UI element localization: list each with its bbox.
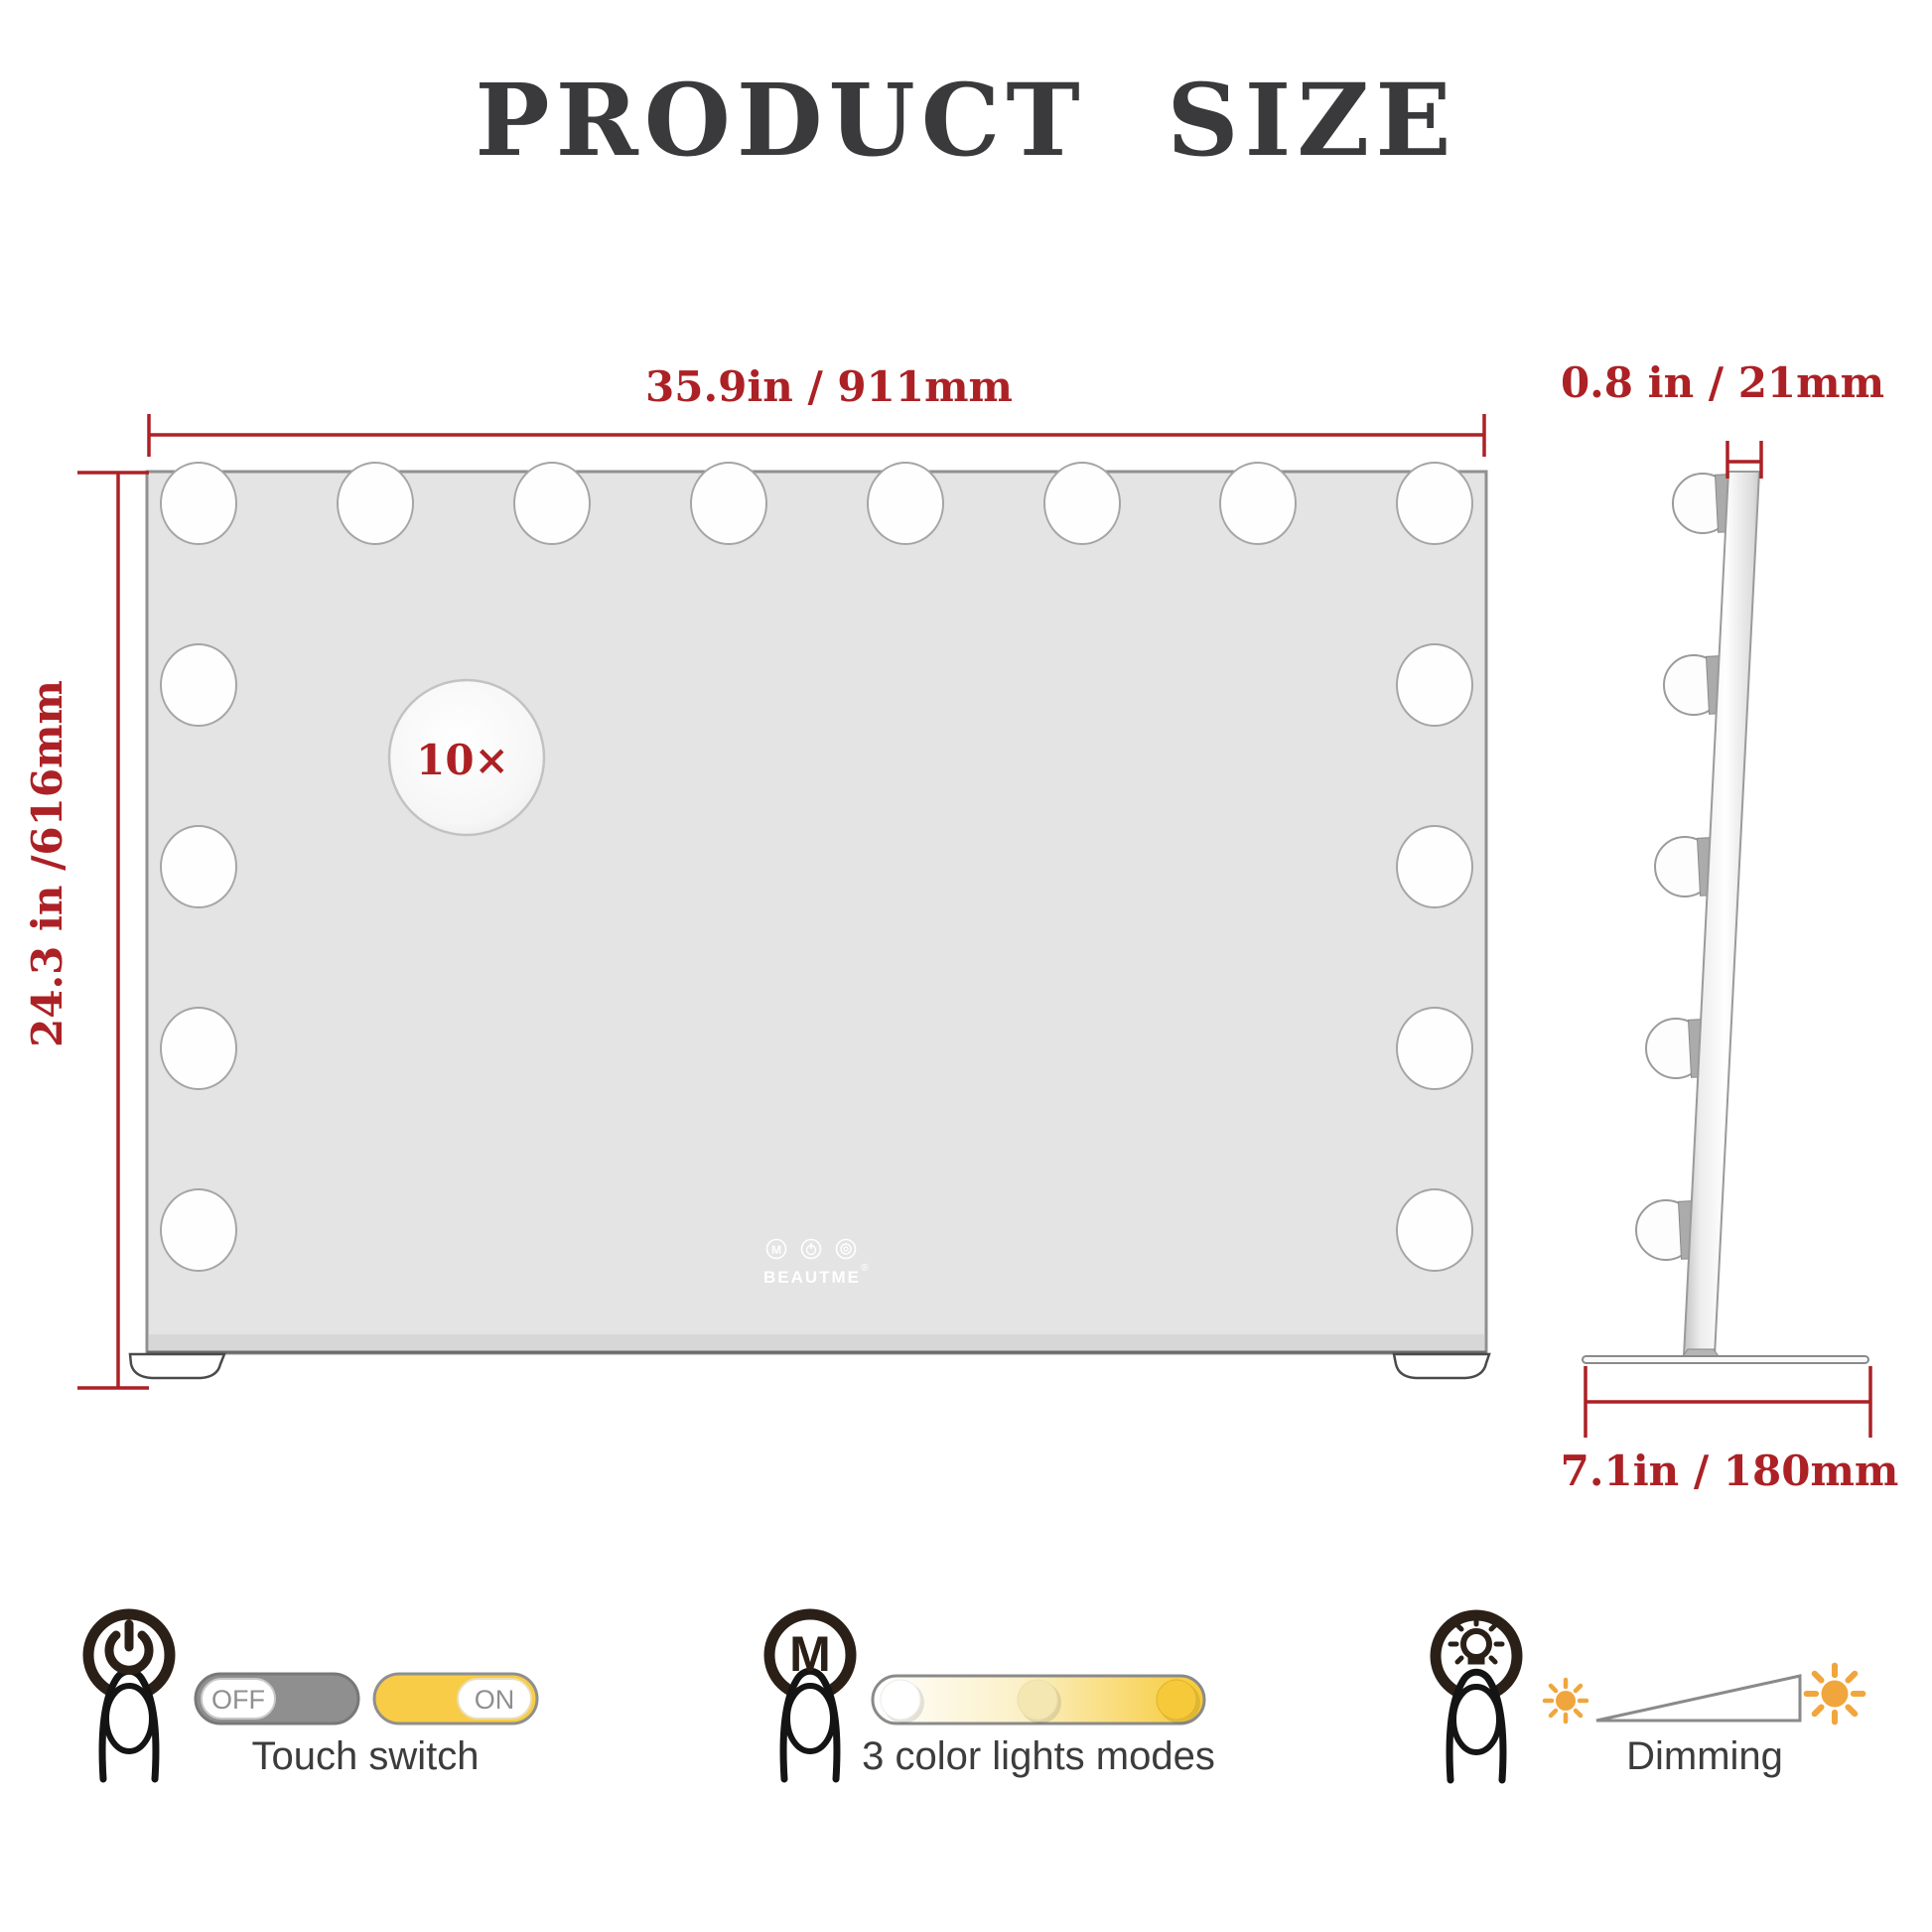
power-icon bbox=[109, 1624, 149, 1670]
magnifier-label: 10× bbox=[416, 736, 509, 784]
width-dimension-label: 35.9in / 911mm bbox=[645, 362, 1013, 411]
thickness-dimension-label: 0.8 in / 21mm bbox=[1561, 358, 1884, 407]
feature-dimming: Dimming bbox=[1436, 1615, 1863, 1780]
magnifier-spot: 10× bbox=[389, 680, 544, 835]
toggle-off-label: OFF bbox=[211, 1685, 265, 1715]
bulb bbox=[1397, 1008, 1472, 1089]
base-joint bbox=[1683, 1349, 1719, 1356]
product-size-infographic: PRODUCT SIZE bbox=[0, 0, 1932, 1932]
brand-registered-mark: ® bbox=[861, 1263, 869, 1274]
bulb bbox=[868, 463, 943, 544]
right-foot bbox=[1394, 1354, 1489, 1378]
mode-touch-icon: M bbox=[769, 1614, 851, 1779]
brand-logo: BEAUTME bbox=[763, 1268, 861, 1287]
diagram: 10× M BEAUTME ® 35.9in / 911mm bbox=[0, 0, 1932, 1932]
bulb bbox=[1220, 463, 1296, 544]
bulb bbox=[1397, 644, 1472, 726]
mirror-front-view: 10× M BEAUTME ® bbox=[130, 463, 1489, 1378]
left-foot bbox=[130, 1354, 224, 1378]
bright-sun-icon bbox=[1807, 1666, 1863, 1723]
width-dimension bbox=[149, 414, 1484, 457]
toggle-off: OFF bbox=[196, 1674, 358, 1724]
bulb bbox=[161, 644, 236, 726]
bulb bbox=[1397, 463, 1472, 544]
feature-touch-switch: OFF ON Touch switch bbox=[88, 1614, 537, 1779]
bulb bbox=[1397, 1189, 1472, 1271]
dim-sun-icon bbox=[1545, 1680, 1587, 1722]
bulb bbox=[161, 1008, 236, 1089]
mirror-side-view bbox=[1583, 472, 1868, 1363]
light-touch-icon bbox=[1436, 1615, 1517, 1780]
height-dimension-label: 24.3 in /616mm bbox=[23, 680, 71, 1047]
bulb bbox=[1397, 826, 1472, 907]
m-icon: M bbox=[789, 1626, 831, 1682]
touch-switch-label: Touch switch bbox=[252, 1734, 480, 1778]
mirror-frame bbox=[147, 472, 1486, 1353]
mini-m-glyph: M bbox=[771, 1243, 781, 1257]
bulb bbox=[1044, 463, 1120, 544]
height-dimension bbox=[77, 473, 149, 1388]
feature-color-modes: M 3 color lights modes bbox=[769, 1614, 1215, 1779]
toggle-on: ON bbox=[374, 1674, 537, 1724]
bulb bbox=[161, 826, 236, 907]
mode-dot-yellow bbox=[1157, 1680, 1196, 1720]
mirror-bottom-strip bbox=[149, 1334, 1484, 1352]
bulb bbox=[161, 463, 236, 544]
toggle-on-label: ON bbox=[475, 1685, 515, 1715]
bulb bbox=[514, 463, 590, 544]
bulb-icon bbox=[1450, 1618, 1502, 1662]
base-dimension bbox=[1586, 1366, 1870, 1438]
color-modes-label: 3 color lights modes bbox=[862, 1734, 1215, 1778]
side-base bbox=[1583, 1356, 1868, 1363]
mode-dot-warmwhite bbox=[1018, 1680, 1057, 1720]
brightness-ramp bbox=[1596, 1676, 1800, 1721]
bulb bbox=[691, 463, 766, 544]
base-dimension-label: 7.1in / 180mm bbox=[1561, 1447, 1899, 1495]
mode-dot-white bbox=[881, 1680, 920, 1720]
dimming-label: Dimming bbox=[1626, 1734, 1783, 1778]
bulb bbox=[161, 1189, 236, 1271]
bulb bbox=[338, 463, 413, 544]
power-touch-icon bbox=[88, 1614, 170, 1779]
side-panel bbox=[1684, 472, 1759, 1356]
